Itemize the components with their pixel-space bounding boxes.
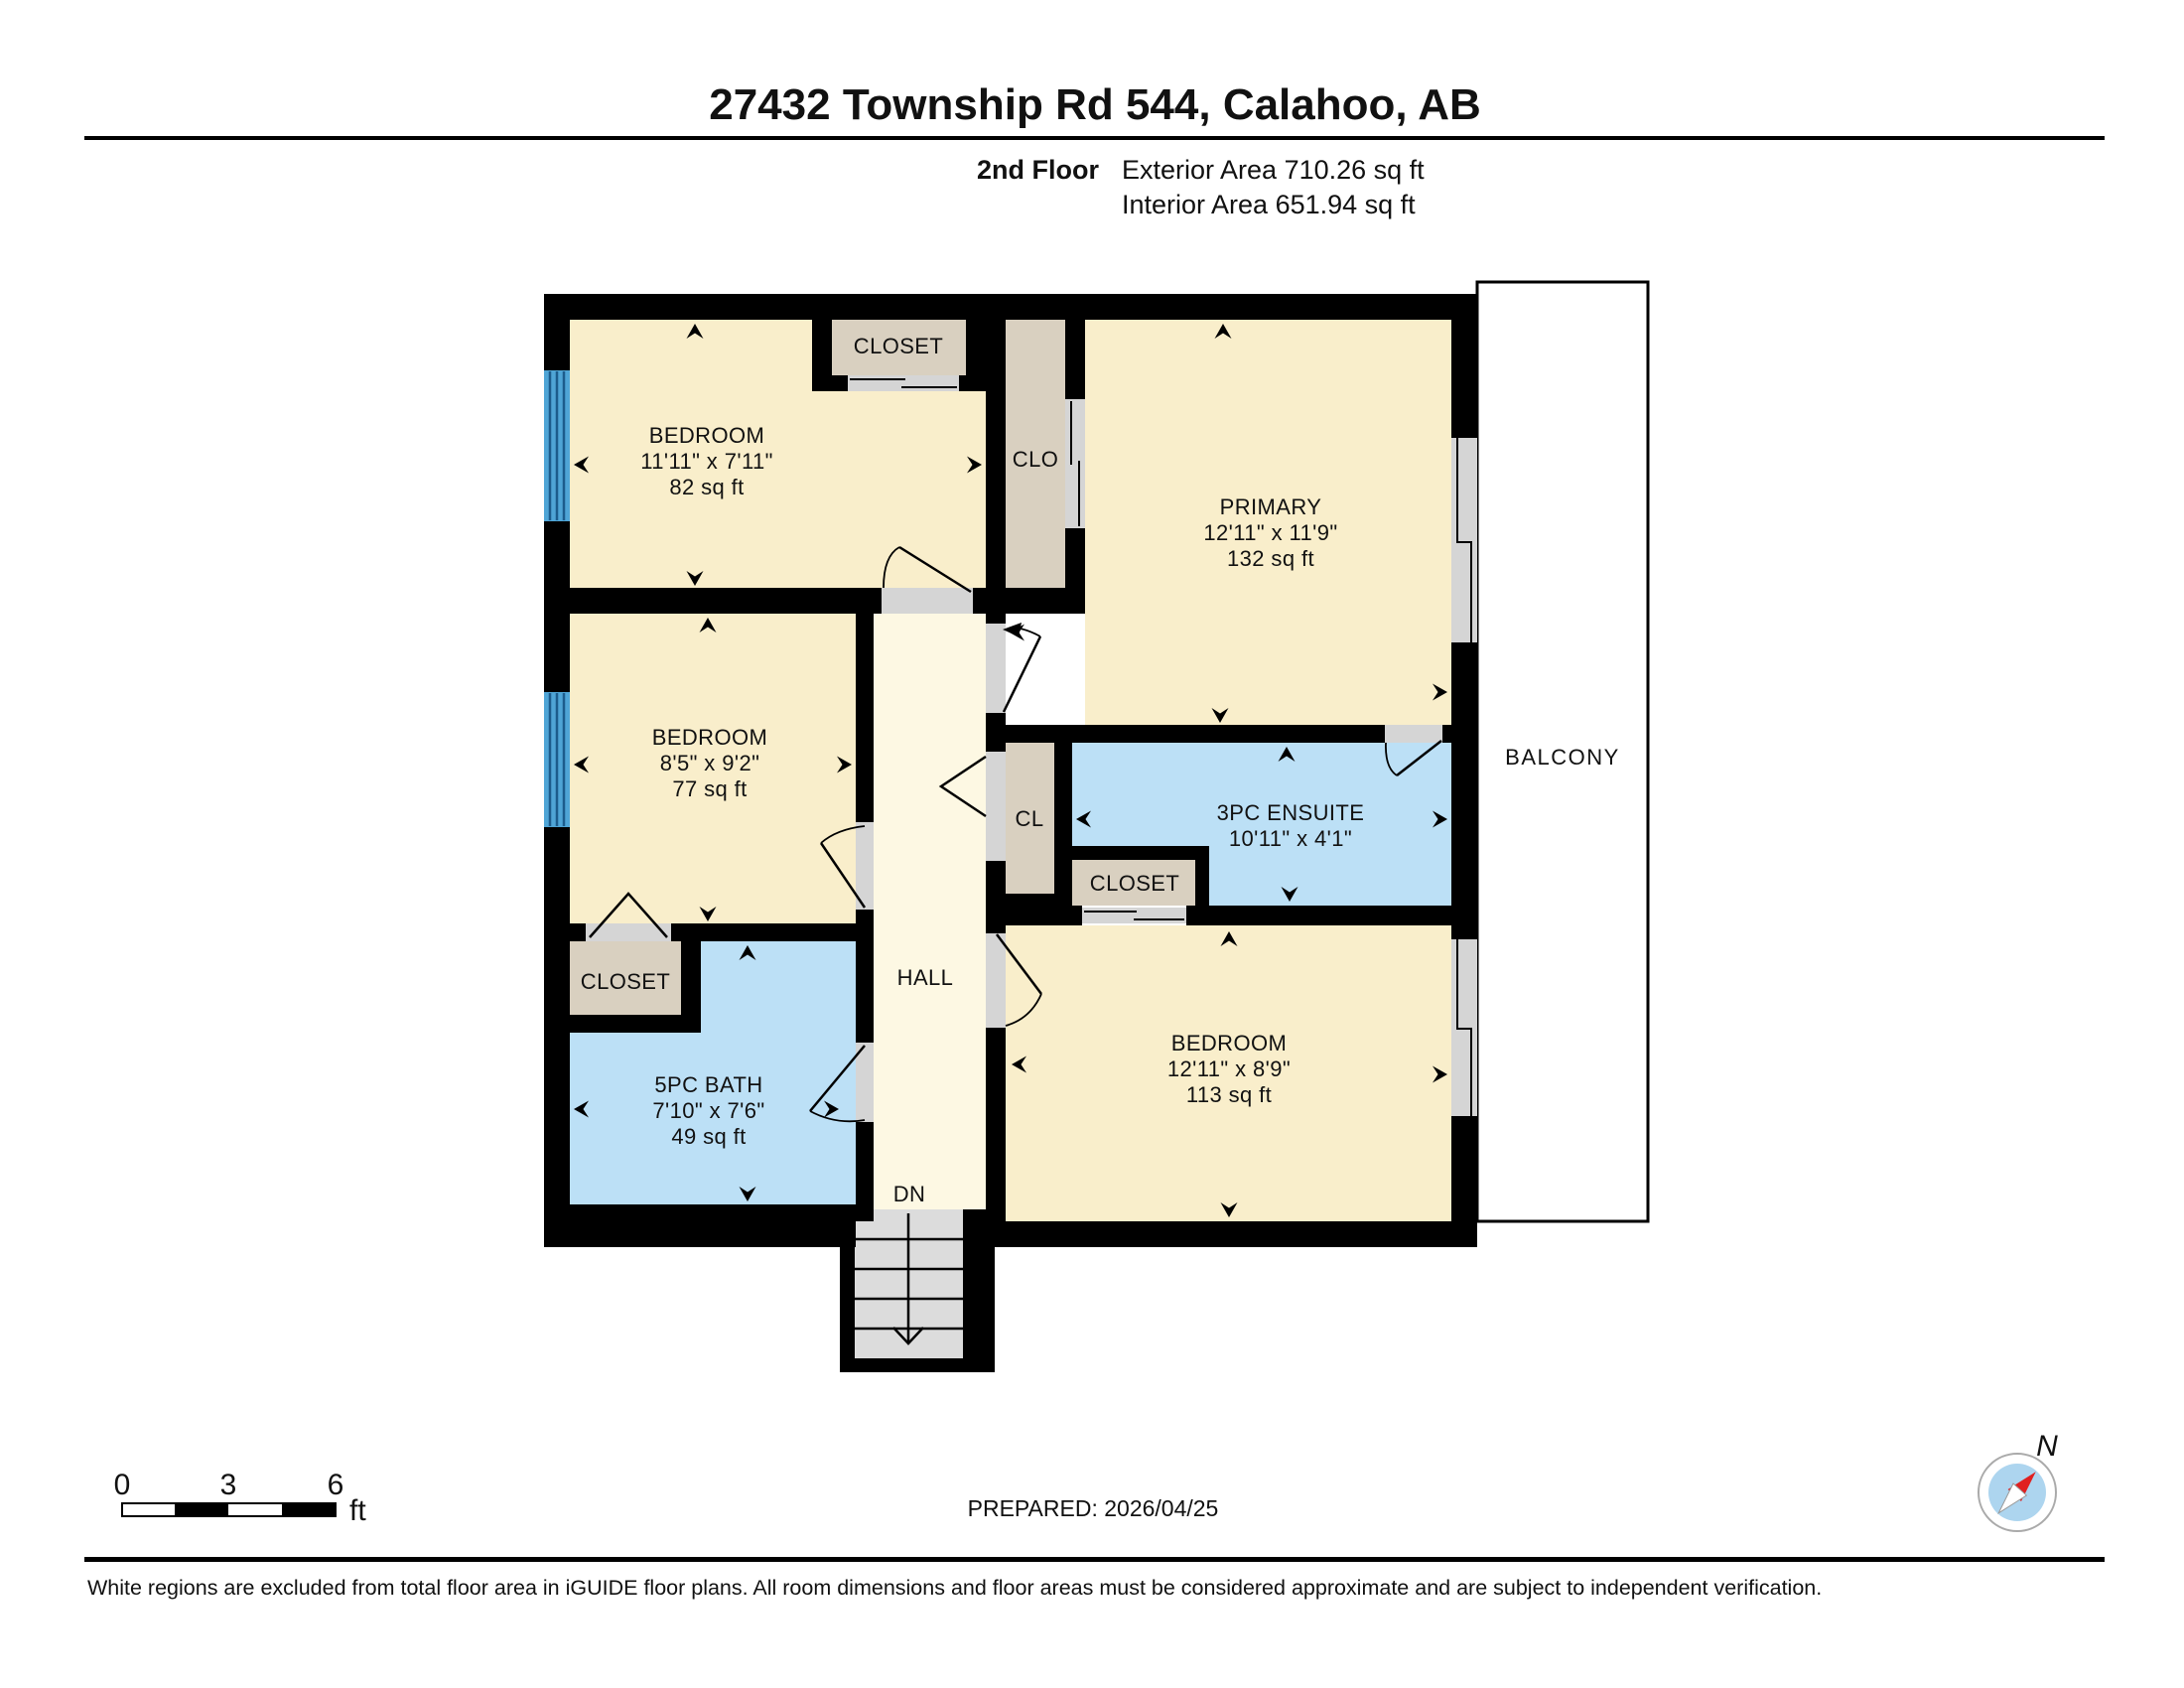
room-hall [874, 614, 986, 1209]
scale-bar: 0 3 6 ft [114, 1469, 367, 1527]
hall-label: HALL [897, 965, 954, 990]
scale-unit: ft [349, 1494, 366, 1527]
bath-name: 5PC BATH [654, 1072, 762, 1097]
bedroom-ml-name: BEDROOM [652, 725, 767, 750]
footer-divider [84, 1557, 2105, 1562]
floor-plan-canvas: 27432 Township Rd 544, Calahoo, AB 2nd F… [0, 0, 2184, 1688]
prepared-date: PREPARED: 2026/04/25 [968, 1495, 1219, 1521]
balcony-label: BALCONY [1505, 745, 1620, 770]
compass-north-label: N [2036, 1430, 2058, 1463]
interior-area-label: Interior Area 651.94 sq ft [1122, 190, 1416, 219]
disclaimer-text: White regions are excluded from total fl… [87, 1576, 1822, 1600]
bath-area: 49 sq ft [671, 1124, 746, 1149]
bedroom-br-dims: 12'11" x 8'9" [1167, 1056, 1291, 1081]
floor-label: 2nd Floor [977, 155, 1099, 185]
ensuite-dims: 10'11" x 4'1" [1229, 826, 1352, 851]
scale-tick-0: 0 [114, 1469, 131, 1501]
primary-area: 132 sq ft [1227, 546, 1314, 571]
bedroom-tl-dims: 11'11" x 7'11" [640, 449, 773, 474]
page-title: 27432 Township Rd 544, Calahoo, AB [709, 80, 1481, 129]
bedroom-ml-dims: 8'5" x 9'2" [660, 751, 760, 775]
cl-label: CL [1016, 806, 1044, 831]
dn-label: DN [893, 1182, 926, 1206]
closet-bl-label: CLOSET [581, 969, 670, 994]
bath-dims: 7'10" x 7'6" [652, 1098, 764, 1123]
bedroom-br-area: 113 sq ft [1186, 1082, 1272, 1107]
bedroom-br-name: BEDROOM [1171, 1031, 1287, 1055]
primary-name: PRIMARY [1220, 494, 1322, 519]
bedroom-ml-area: 77 sq ft [672, 776, 747, 801]
header-divider [84, 136, 2105, 140]
floor-plan-page: 27432 Township Rd 544, Calahoo, AB 2nd F… [0, 0, 2184, 1688]
compass-icon: N [1979, 1430, 2058, 1531]
bedroom-tl-name: BEDROOM [649, 423, 764, 448]
closet-ensuite-label: CLOSET [1090, 871, 1179, 896]
clo-label: CLO [1013, 447, 1058, 472]
bedroom-tl-area: 82 sq ft [669, 475, 744, 499]
primary-dims: 12'11" x 11'9" [1203, 520, 1337, 545]
scale-tick-3: 3 [220, 1469, 237, 1501]
closet-tl-label: CLOSET [854, 334, 943, 358]
sliding-door-primary [1451, 438, 1477, 642]
ensuite-name: 3PC ENSUITE [1217, 800, 1365, 825]
scale-tick-6: 6 [328, 1469, 344, 1501]
exterior-area-label: Exterior Area 710.26 sq ft [1122, 155, 1425, 185]
